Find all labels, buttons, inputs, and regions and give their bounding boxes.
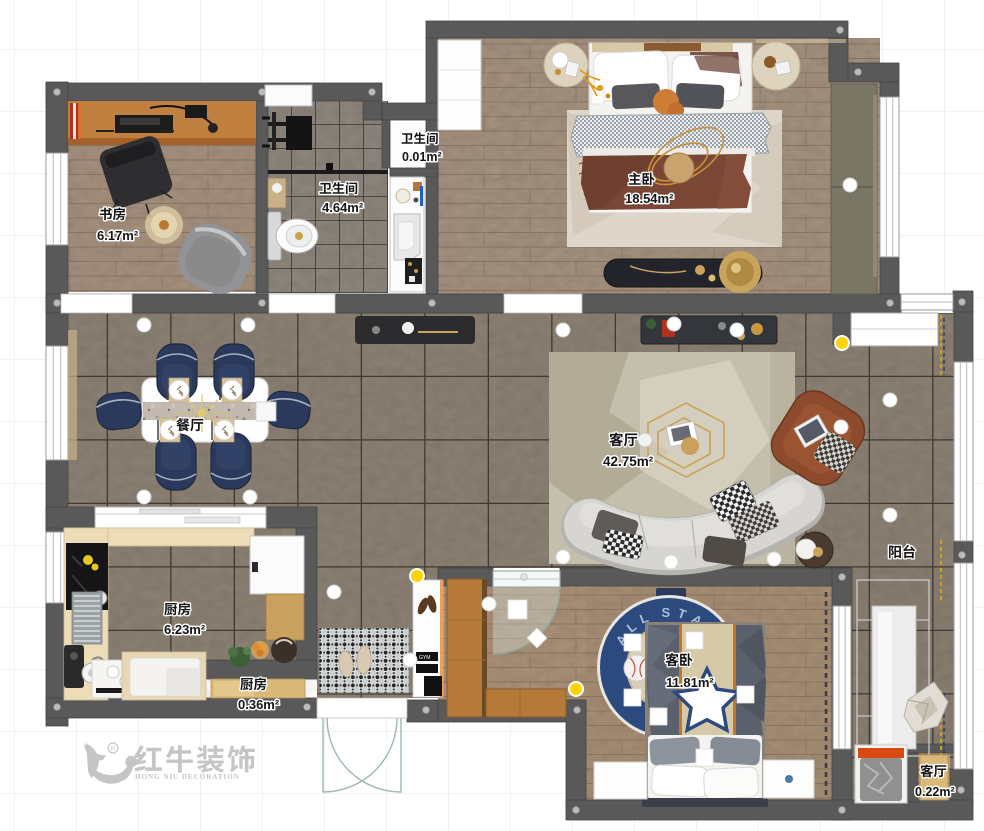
svg-text:0.22m²: 0.22m² bbox=[915, 785, 955, 799]
svg-text:R: R bbox=[111, 746, 116, 753]
svg-text:11.81m²: 11.81m² bbox=[666, 675, 714, 690]
svg-text:0.36m²: 0.36m² bbox=[238, 697, 280, 712]
svg-text:GYM: GYM bbox=[419, 655, 430, 661]
svg-text:42.75m²: 42.75m² bbox=[603, 454, 654, 469]
svg-text:6.23m²: 6.23m² bbox=[164, 622, 206, 637]
svg-text:HONG NIU DECORATION: HONG NIU DECORATION bbox=[135, 773, 240, 781]
svg-text:6.17m²: 6.17m² bbox=[97, 228, 139, 243]
svg-text:S: S bbox=[661, 605, 671, 620]
svg-text:4.64m²: 4.64m² bbox=[322, 200, 364, 215]
svg-text:18.54m²: 18.54m² bbox=[625, 191, 674, 206]
svg-text:0.01m²: 0.01m² bbox=[402, 150, 442, 164]
